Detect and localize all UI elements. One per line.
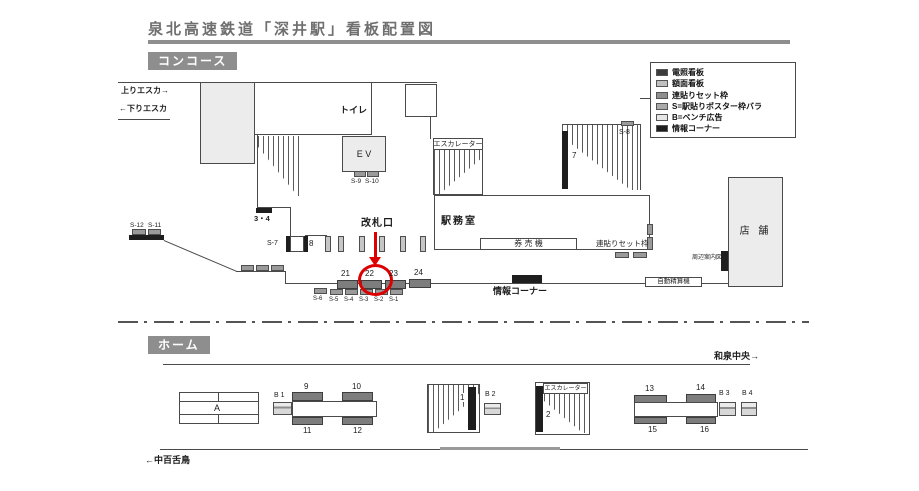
sign-s11-label: S-11 — [148, 223, 161, 230]
direction-nakamozu-label: ←中百舌鳥 — [145, 456, 190, 465]
legend-swatch-illuminated-sign — [656, 69, 668, 76]
gate-pillar — [338, 236, 344, 252]
gate-pillar — [420, 236, 426, 252]
bench-b1 — [273, 402, 292, 415]
fare-machine-label: 自動精算機 — [645, 277, 702, 287]
sign-s9-label: S-9 — [351, 179, 361, 186]
gate-pillar — [379, 236, 385, 252]
bench-b3 — [719, 402, 736, 416]
toilet-bottom-wall — [255, 134, 372, 135]
poster-set-frame — [615, 252, 629, 258]
gate-side-sign — [304, 236, 308, 252]
area-map-sign — [721, 251, 728, 271]
sign-23-label: 23 — [389, 270, 398, 278]
bench-b2 — [484, 403, 501, 415]
ramp-foot-wall — [236, 271, 286, 272]
bench-b4 — [741, 402, 757, 416]
platform-kiosk-13-16 — [634, 402, 718, 417]
escalator-block-room — [200, 82, 255, 164]
gate-pillar — [325, 236, 331, 252]
platform-bottom-thick-segment — [440, 447, 560, 450]
concourse-section-badge: コンコース — [148, 52, 237, 70]
sign-s12 — [132, 229, 146, 235]
concourse-escalator-label: エスカレーター — [433, 138, 483, 150]
sign-1-label: 1 — [459, 394, 465, 402]
escalator-label-underline — [118, 119, 170, 120]
sign-21 — [337, 280, 358, 289]
sign-9-label: 9 — [304, 383, 308, 391]
sign-s12-label: S-12 — [130, 223, 144, 230]
info-corner-sign — [512, 275, 542, 283]
legend-item: S=駅貼りポスター枠バラ — [656, 101, 790, 112]
bench-b1-label: B 1 — [274, 392, 285, 399]
platform-top-edge — [163, 364, 750, 365]
sign-22-label: 22 — [365, 270, 374, 278]
legend-swatch-panel-sign — [656, 80, 668, 87]
sign-10-label: 10 — [352, 383, 361, 391]
sign-2-illuminated — [536, 386, 543, 432]
legend-item: B=ベンチ広告 — [656, 112, 790, 123]
direction-izumichuo-label: 和泉中央→ — [714, 352, 759, 361]
sign-s3-label: S-3 — [359, 297, 368, 303]
sign-s10-label: S-10 — [365, 179, 379, 186]
sign-s8 — [621, 121, 634, 126]
sign-11 — [292, 417, 323, 425]
structure-a-divider — [218, 392, 219, 401]
sign-s4 — [345, 289, 358, 295]
bench-b3-label: B 3 — [719, 390, 730, 397]
legend-label: B=ベンチ広告 — [672, 113, 722, 122]
sign-12 — [342, 417, 373, 425]
bench-b4-label: B 4 — [742, 390, 753, 397]
sign-s1 — [390, 289, 403, 295]
bottom-step-wall — [285, 271, 286, 284]
legend-swatch-poster-set-frame — [656, 92, 668, 99]
sign-9 — [292, 392, 323, 401]
info-corner-label: 情報コーナー — [493, 287, 547, 296]
poster-frame — [256, 265, 269, 271]
legend-label: 連貼りセット枠 — [672, 91, 728, 100]
gate-fence-wall — [305, 235, 327, 236]
legend-label: 電照看板 — [672, 68, 704, 77]
ticket-gate-label: 改札口 — [361, 219, 394, 229]
structure-a-line — [179, 401, 259, 402]
sign-s6 — [314, 288, 327, 294]
sign-13-label: 13 — [645, 385, 654, 393]
legend-label: S=駅貼りポスター枠バラ — [672, 102, 762, 111]
structure-a-line — [179, 414, 259, 415]
platform-escalator-label: エスカレーター — [543, 383, 588, 394]
sign-s6-label: S-6 — [313, 296, 322, 302]
upper-small-room — [405, 84, 437, 117]
toilet-label: トイレ — [340, 106, 367, 115]
sign-2-label: 2 — [545, 411, 551, 419]
sign-16-label: 16 — [700, 426, 709, 434]
elevator-label: E V — [342, 136, 386, 172]
gate-pillar — [400, 236, 406, 252]
concourse-left-stairs — [258, 136, 303, 196]
upper-box-wall — [430, 117, 431, 139]
sign-s11 — [148, 229, 161, 235]
down-escalator-label: ←下りエスカ — [119, 105, 167, 113]
sign-s2-label: S-2 — [374, 297, 383, 303]
sign-24 — [409, 279, 431, 288]
poster-set-frame-label: 連貼りセット枠 — [596, 240, 649, 248]
legend-label: 情報コーナー — [672, 124, 720, 133]
sign-24-label: 24 — [414, 269, 423, 277]
page-title: 泉北高速鉄道「深井駅」看板配置図 — [148, 18, 436, 39]
ticket-machine-label: 券 売 機 — [480, 238, 577, 250]
sign-8-label: 8 — [309, 240, 313, 248]
sign-10 — [342, 392, 373, 401]
sign-11-label: 11 — [303, 427, 311, 435]
legend-swatch-info-corner — [656, 125, 668, 132]
sign-15 — [634, 417, 667, 424]
sign-12-label: 12 — [353, 427, 362, 435]
legend-leader-line — [640, 98, 650, 99]
highlight-arrow-line — [374, 232, 377, 257]
sign-7-label: 7 — [571, 152, 577, 160]
area-map-label: 周辺案内図 — [692, 255, 722, 261]
sign-3-4 — [256, 208, 272, 213]
legend-label: 額面看板 — [672, 79, 704, 88]
legend-swatch-bench-ad — [656, 114, 668, 121]
concourse-escalator-stairs — [433, 150, 483, 195]
ramp-diagonal-wall — [164, 240, 237, 272]
station-office-label: 駅務室 — [441, 217, 477, 227]
section-divider — [118, 321, 809, 323]
corner-wall-v — [290, 207, 291, 237]
legend-swatch-station-poster — [656, 103, 668, 110]
sign-s7-label: S-7 — [267, 240, 278, 247]
stairs7-right-wall — [640, 124, 641, 190]
sign-s4-label: S-4 — [344, 297, 353, 303]
gate-booth — [290, 236, 304, 252]
platform-section-badge: ホーム — [148, 336, 210, 354]
sign-16 — [686, 417, 716, 424]
sign-3-4-label: 3・4 — [254, 215, 270, 223]
toilet-right-wall — [371, 82, 372, 135]
ramp-sign-bar — [129, 235, 164, 240]
platform-kiosk-9-12 — [292, 401, 377, 417]
sign-s8-label: S-8 — [619, 129, 630, 136]
sign-s5-label: S-5 — [329, 297, 338, 303]
sign-1-illuminated — [468, 387, 476, 430]
sign-7-illuminated — [562, 131, 568, 189]
sign-a-label: A — [214, 404, 220, 413]
poster-frame — [241, 265, 254, 271]
sign-s5 — [330, 289, 343, 295]
title-underline — [148, 40, 790, 44]
store-label: 店 舗 — [728, 177, 783, 287]
poster-set-frame — [633, 252, 647, 258]
legend-item: 連貼りセット枠 — [656, 90, 790, 101]
office-wall-frame — [647, 224, 653, 235]
sign-21-label: 21 — [341, 270, 350, 278]
legend-item: 情報コーナー — [656, 123, 790, 134]
legend-box: 電照看板 額面看板 連貼りセット枠 S=駅貼りポスター枠バラ B=ベンチ広告 情… — [650, 62, 796, 138]
structure-a-divider — [218, 414, 219, 424]
highlight-circle-22 — [358, 264, 393, 296]
bench-b2-label: B 2 — [485, 391, 496, 398]
sign-14-label: 14 — [696, 384, 705, 392]
concourse-top-wall — [118, 82, 437, 83]
legend-item: 電照看板 — [656, 67, 790, 78]
poster-frame — [271, 265, 284, 271]
gate-pillar — [359, 236, 365, 252]
sign-s1-label: S-1 — [389, 297, 398, 303]
sign-15-label: 15 — [648, 426, 657, 434]
up-escalator-label: 上りエスカ→ — [121, 87, 169, 95]
legend-item: 額面看板 — [656, 78, 790, 89]
